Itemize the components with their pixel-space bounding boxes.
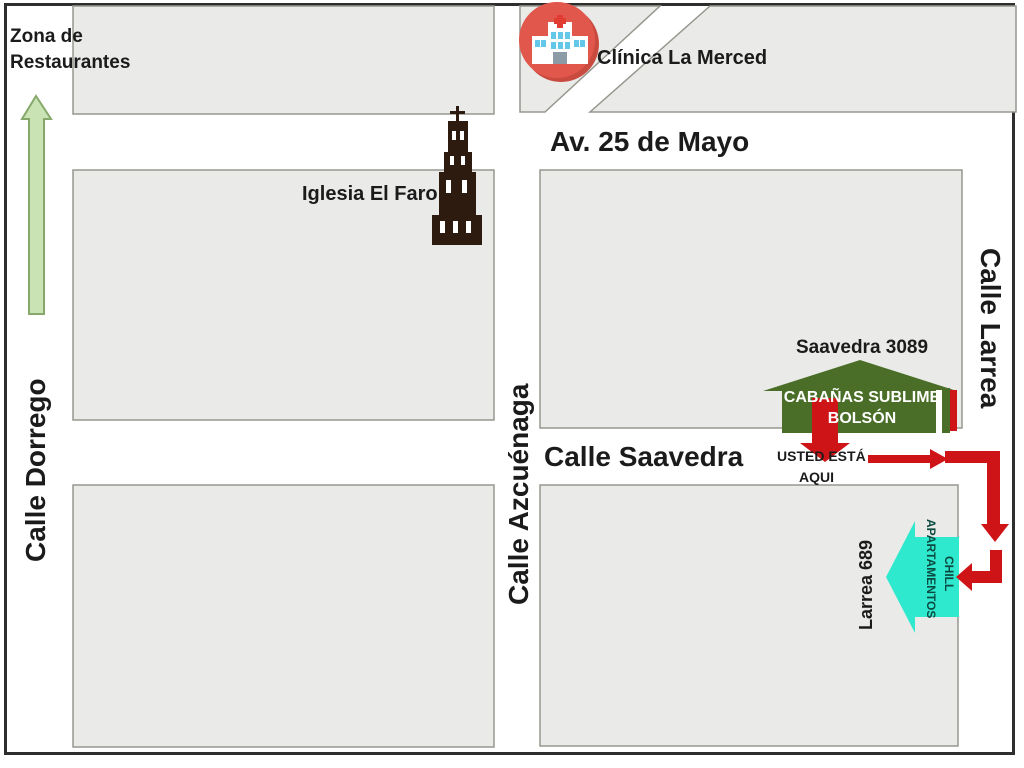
saavedra-3089-address-label: Saavedra 3089 [796, 337, 928, 359]
block-top-left [73, 6, 494, 114]
block-bottom-mid [540, 485, 958, 746]
route-elbow-left-arrow [956, 550, 1002, 591]
street-label-calle-azcuenaga: Calle Azcuénaga [503, 384, 535, 605]
iglesia-el-faro-label: Iglesia El Faro [302, 183, 438, 206]
zona-restaurantes-label-line1: Zona de [10, 26, 83, 48]
you-are-here-label-line1: USTED ESTÁ [777, 448, 866, 464]
route-arrow-east-shaft [868, 455, 930, 463]
apartamentos-chill-label-line1: APARTAMENTOS [924, 519, 938, 618]
street-label-av-25-de-mayo: Av. 25 de Mayo [550, 126, 749, 158]
block-mid-left [73, 170, 494, 420]
house-entrance-marker [950, 390, 957, 431]
cabanas-sublime-label-line2: BOLSÓN [780, 410, 944, 428]
restaurants-direction-arrow-icon [22, 96, 51, 314]
larrea-689-address-label: Larrea 689 [856, 540, 877, 630]
clinic-door [553, 52, 567, 64]
street-label-calle-saavedra: Calle Saavedra [544, 441, 743, 473]
apartamentos-chill-label-line2: CHILL [942, 556, 956, 591]
street-label-calle-dorrego: Calle Dorrego [20, 378, 52, 562]
clinica-la-merced-label: Clínica La Merced [597, 47, 767, 70]
street-label-calle-larrea: Calle Larrea [974, 248, 1006, 408]
block-bottom-left [73, 485, 494, 747]
zona-restaurantes-label-line2: Restaurantes [10, 52, 130, 74]
cabanas-sublime-label-line1: CABAÑAS SUBLIME [780, 389, 944, 407]
you-are-here-label-line2: AQUI [799, 469, 834, 485]
sketch-map: Zona de Restaurantes Clínica La Merced A… [0, 0, 1024, 768]
